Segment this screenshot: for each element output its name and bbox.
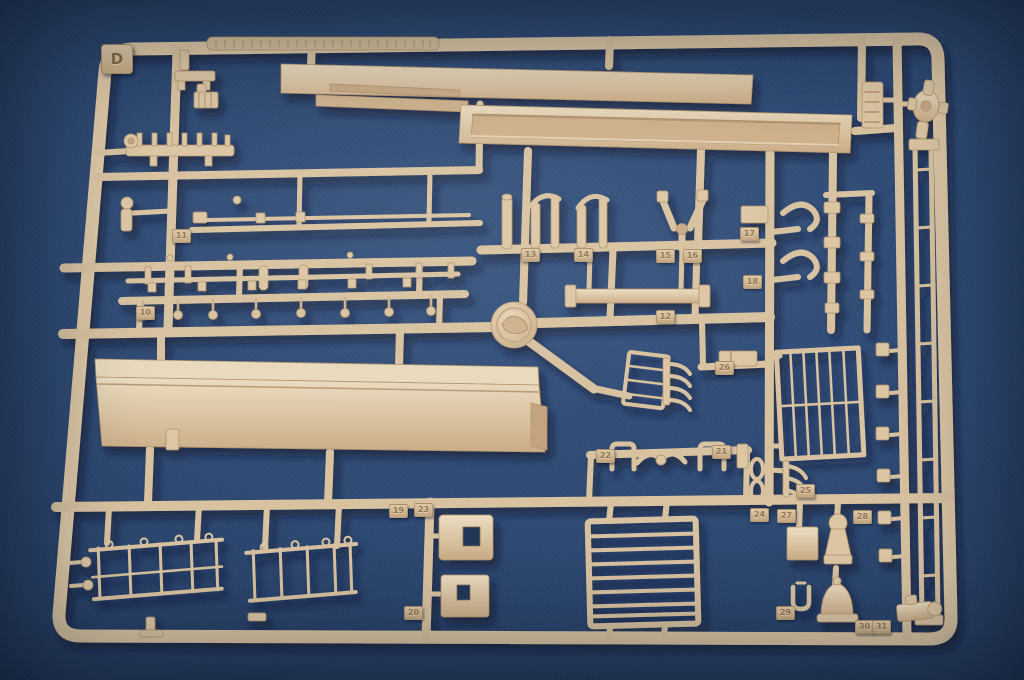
- part-number-tag-21: 21: [712, 445, 731, 459]
- part-number-tag-13: 13: [521, 248, 540, 262]
- part-number-tag-14: 14: [574, 248, 593, 262]
- photo-model-kit-sprue: 1110131415161718122622212519232427282029…: [0, 0, 1024, 680]
- part-number-tag-12: 12: [656, 310, 675, 324]
- part-number-tag-17: 17: [740, 227, 759, 241]
- part-number-tag-18: 18: [743, 275, 762, 289]
- part-number-tag-31: 31: [872, 620, 891, 634]
- part-number-tag-26: 26: [715, 361, 734, 375]
- part-number-tag-29: 29: [776, 606, 795, 620]
- part-number-tag-28: 28: [853, 510, 872, 524]
- part-number-tag-10: 10: [136, 306, 155, 320]
- part-number-tag-19: 19: [389, 504, 408, 518]
- part-number-tag-22: 22: [596, 449, 615, 463]
- part-number-tag-27: 27: [777, 509, 796, 523]
- part-number-tag-16: 16: [683, 249, 702, 263]
- part-number-tag-24: 24: [750, 508, 769, 522]
- part-tags-layer: 1110131415161718122622212519232427282029…: [0, 0, 1024, 680]
- part-number-tag-15: 15: [656, 249, 675, 263]
- part-number-tag-11: 11: [172, 229, 191, 243]
- part-number-tag-25: 25: [796, 484, 815, 498]
- sprue-letter-tag: D: [101, 44, 133, 74]
- part-number-tag-20: 20: [404, 606, 423, 620]
- part-number-tag-23: 23: [414, 503, 433, 517]
